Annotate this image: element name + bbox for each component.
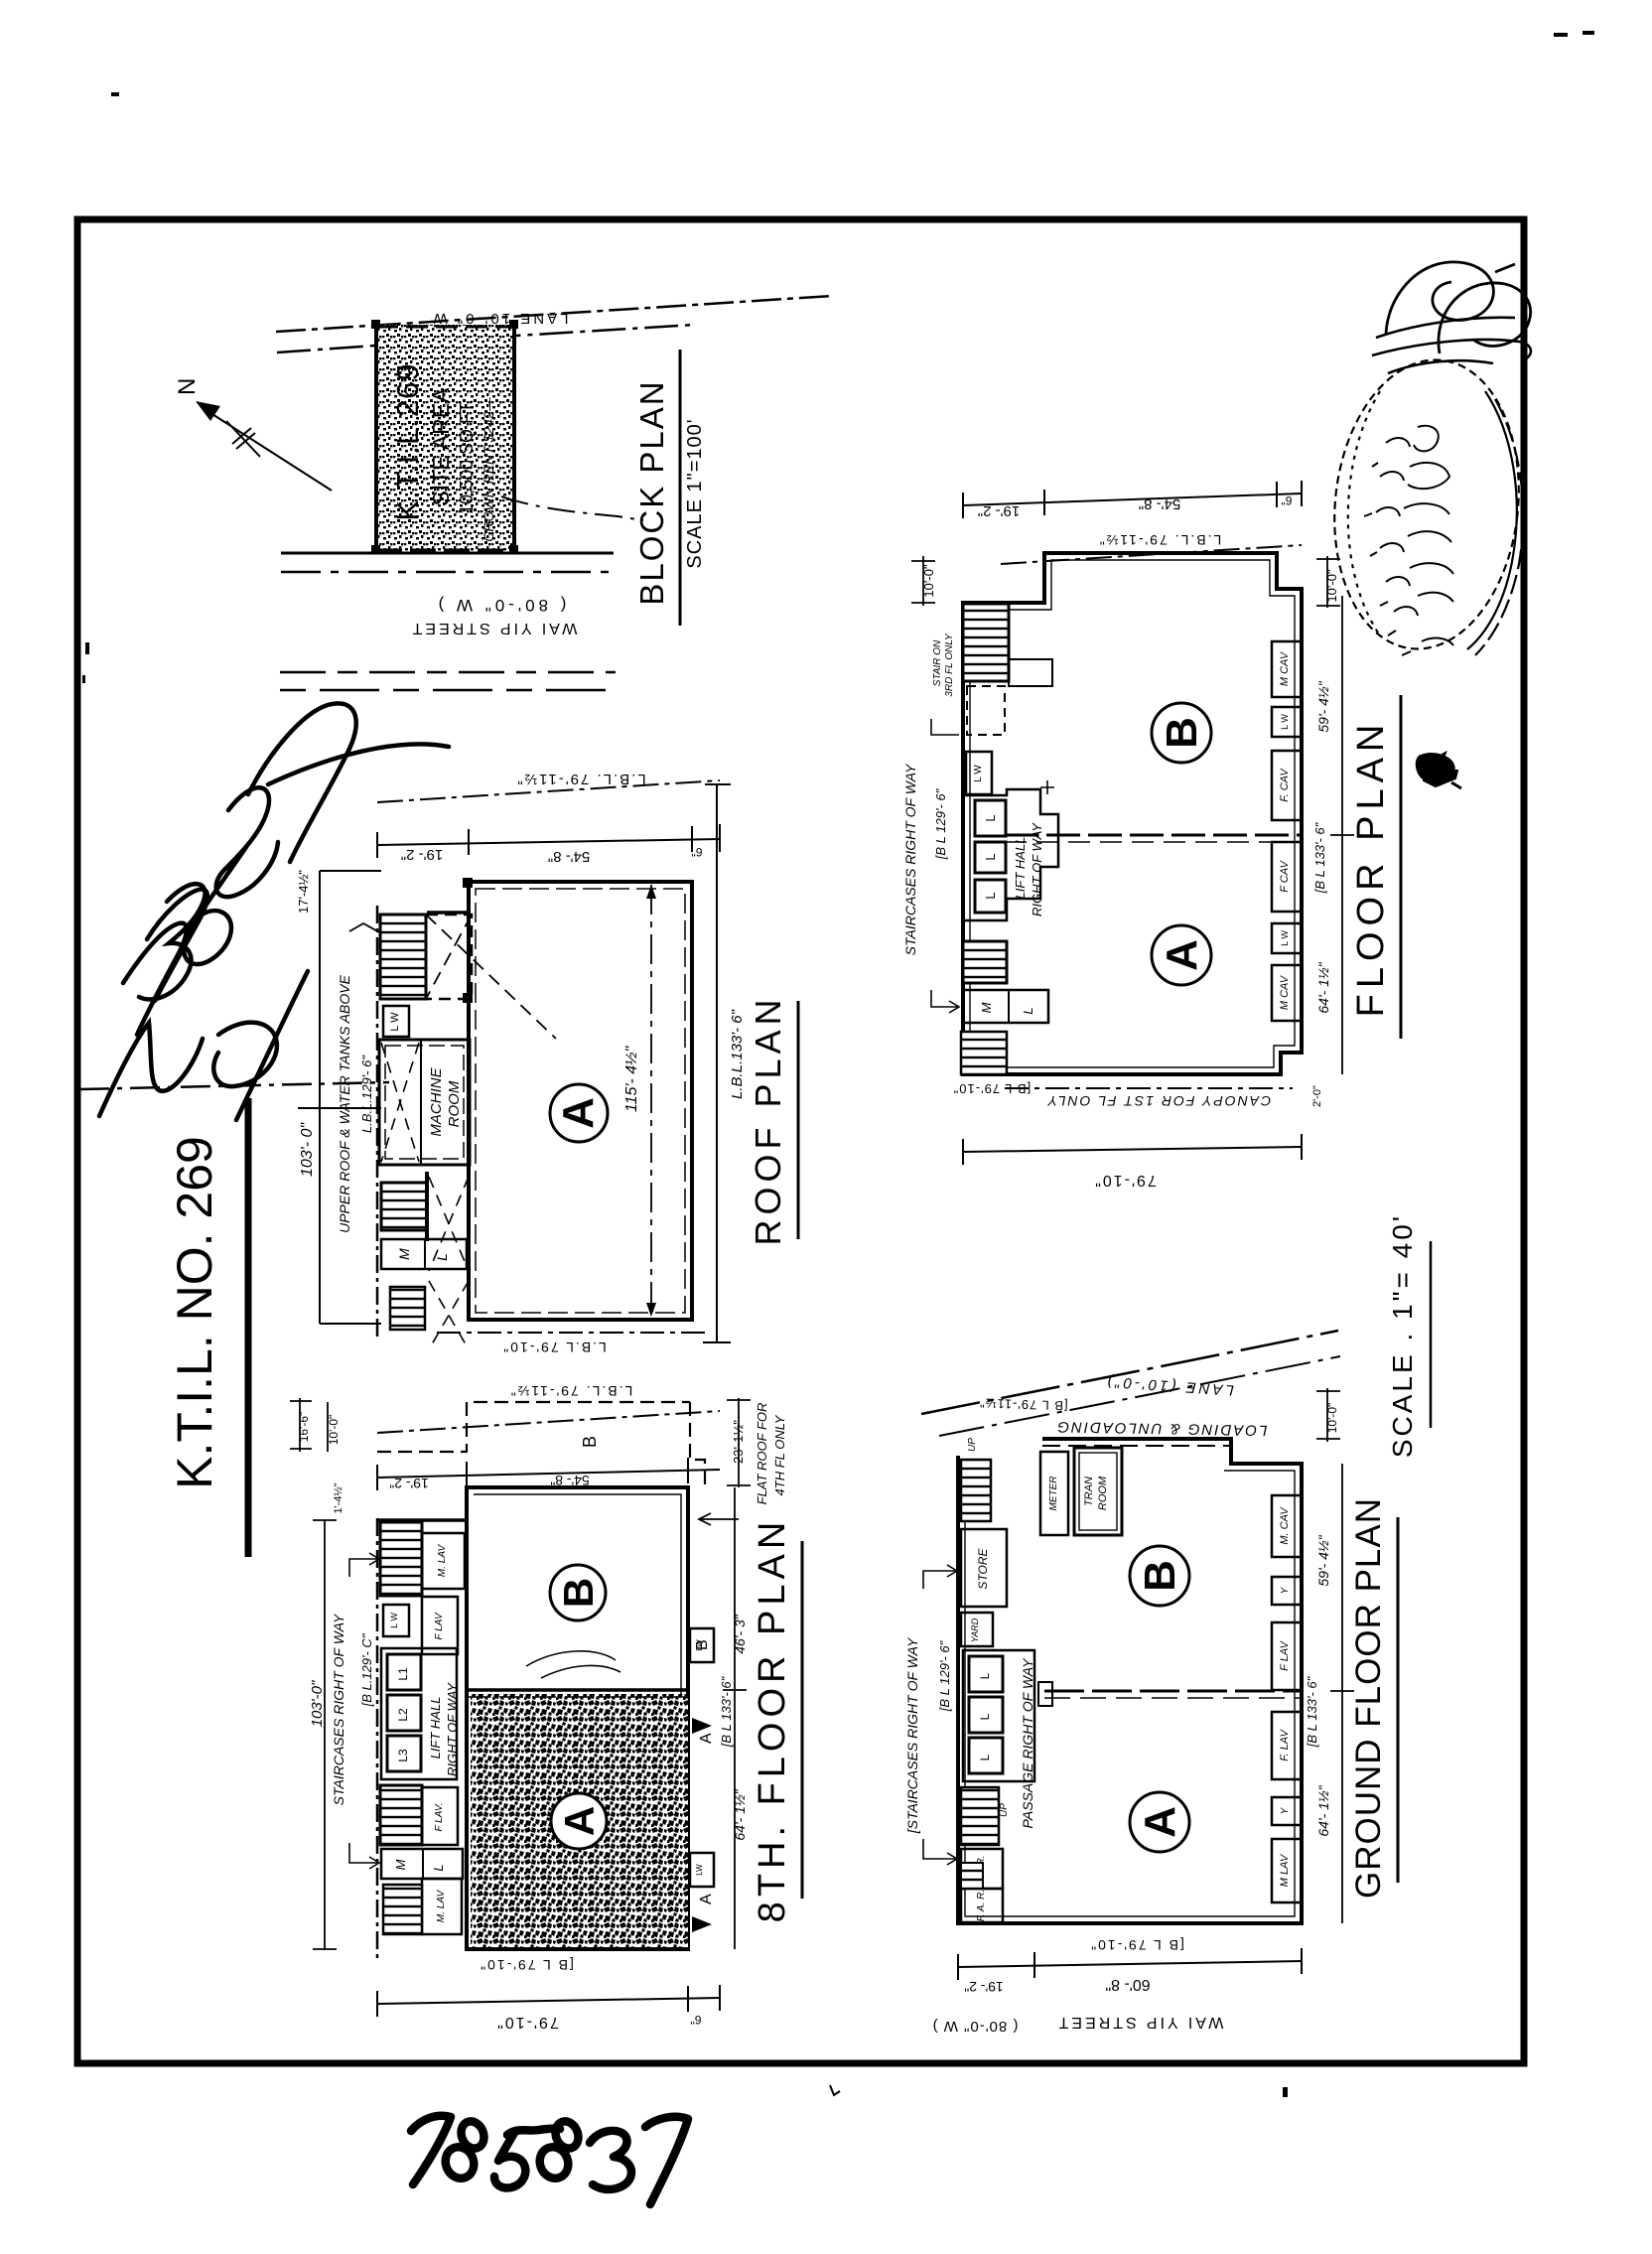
svg-text:10,500 SQ FT.: 10,500 SQ FT.: [457, 399, 477, 514]
svg-text:M CAV: M CAV: [1279, 974, 1291, 1010]
svg-text:L.B.L. 79'-11½": L.B.L. 79'-11½": [515, 771, 645, 787]
svg-text:UP: UP: [999, 1803, 1010, 1817]
svg-text:3RD FL ONLY: 3RD FL ONLY: [944, 633, 955, 697]
svg-text:2'-0": 2'-0": [1311, 1085, 1323, 1107]
svg-text:WAI YIP STREET: WAI YIP STREET: [410, 620, 578, 636]
svg-text:L1: L1: [396, 1667, 410, 1681]
svg-text:SCALE . 1"= 40': SCALE . 1"= 40': [1387, 1213, 1418, 1458]
svg-text:17'-4½": 17'-4½": [296, 870, 311, 914]
svg-text:M. LAV: M. LAV: [436, 1890, 447, 1923]
svg-text:[STAIRCASES RIGHT OF WAY: [STAIRCASES RIGHT OF WAY: [904, 1636, 920, 1834]
svg-text:L.B.L. 79'-11½": L.B.L. 79'-11½": [509, 1383, 633, 1399]
svg-text:K.T.I.L.269: K.T.I.L.269: [390, 362, 425, 520]
svg-text:CANOPY FOR 1ST FL ONLY: CANOPY FOR 1ST FL ONLY: [1046, 1093, 1272, 1109]
svg-text:L2: L2: [396, 1708, 410, 1722]
svg-text:19'- 2": 19'- 2": [978, 502, 1020, 519]
svg-text:L: L: [978, 1672, 992, 1679]
svg-text:M: M: [979, 1002, 994, 1013]
svg-text:L W: L W: [389, 1012, 401, 1032]
svg-text:4TH FL ONLY: 4TH FL ONLY: [772, 1414, 787, 1495]
svg-text:M. LAV: M. LAV: [437, 1544, 448, 1578]
svg-text:M: M: [396, 1248, 412, 1260]
svg-text:103'-0": 103'-0": [309, 1680, 326, 1727]
svg-text:CROWN RENT $242—: CROWN RENT $242—: [481, 396, 496, 541]
svg-text:10'-0": 10'-0": [327, 1415, 341, 1446]
svg-text:F LAV.: F LAV.: [434, 1802, 445, 1831]
svg-text:FLAT ROOF FOR: FLAT ROOF FOR: [755, 1403, 769, 1505]
svg-text:( 80'-0" W ): ( 80'-0" W ): [435, 596, 567, 615]
svg-text:STAIRCASES RIGHT OF WAY: STAIRCASES RIGHT OF WAY: [902, 763, 918, 955]
svg-text:L W: L W: [1280, 714, 1290, 730]
svg-text:19'- 2": 19'- 2": [389, 1476, 429, 1491]
svg-text:[B L 79'-10": [B L 79'-10": [1089, 1937, 1184, 1953]
svg-text:SITE AREA: SITE AREA: [428, 387, 454, 506]
svg-text:UPPER ROOF & WATER TANKS ABOVE: UPPER ROOF & WATER TANKS ABOVE: [337, 974, 352, 1232]
svg-text:B: B: [580, 1436, 600, 1448]
svg-text:[B L.129'- C": [B L.129'- C": [359, 1632, 374, 1707]
svg-text:19'- 2": 19'- 2": [964, 1979, 1004, 1995]
svg-text:L3: L3: [396, 1749, 410, 1762]
svg-text:6": 6": [1282, 493, 1293, 507]
svg-text:19'- 2": 19'- 2": [401, 846, 443, 863]
svg-text:L.B.L. 79'-11½": L.B.L. 79'-11½": [1098, 532, 1222, 548]
svg-text:54'- 8": 54'- 8": [548, 848, 590, 865]
svg-text:ROOF PLAN: ROOF PLAN: [748, 994, 788, 1245]
svg-text:79'-10": 79'-10": [1093, 1172, 1157, 1189]
svg-text:K.T.I.L. NO. 269: K.T.I.L. NO. 269: [167, 1136, 222, 1489]
svg-text:A: A: [698, 1733, 715, 1744]
svg-text:L W: L W: [973, 765, 984, 782]
svg-text:ROOM: ROOM: [446, 1080, 463, 1127]
svg-text:103'- 0": 103'- 0": [299, 1122, 316, 1177]
svg-text:MACHINE: MACHINE: [428, 1066, 445, 1136]
svg-text:L.B.L 79'-10": L.B.L 79'-10": [501, 1339, 607, 1355]
svg-text:[B L 133'- 6": [B L 133'- 6": [1305, 1675, 1319, 1748]
svg-text:TRAN: TRAN: [1083, 1477, 1095, 1506]
svg-text:UP: UP: [967, 1438, 978, 1452]
svg-text:64'- 1½": 64'- 1½": [1315, 1784, 1331, 1836]
svg-text:ROOM: ROOM: [1097, 1476, 1109, 1510]
svg-text:79'-10": 79'-10": [495, 2014, 559, 2031]
svg-text:STAIRCASES RIGHT OF WAY: STAIRCASES RIGHT OF WAY: [331, 1613, 346, 1805]
svg-text:L W: L W: [389, 1613, 399, 1628]
svg-text:L.B.L.133'- 6": L.B.L.133'- 6": [729, 1009, 746, 1099]
svg-text:L: L: [983, 853, 998, 860]
svg-text:METER: METER: [1048, 1477, 1059, 1511]
svg-text:F LAV: F LAV: [434, 1612, 445, 1639]
svg-text:RIGHT OF WAY: RIGHT OF WAY: [1030, 822, 1044, 916]
svg-text:STORE: STORE: [976, 1547, 990, 1589]
svg-text:L: L: [1021, 1007, 1035, 1014]
svg-text:54'- 8": 54'- 8": [1139, 495, 1180, 512]
svg-text:A: A: [1136, 1806, 1184, 1838]
svg-text:F CAV: F CAV: [1279, 860, 1291, 893]
svg-text:M. CAV: M. CAV: [1279, 1506, 1291, 1545]
svg-text:60'- 8": 60'- 8": [1105, 1976, 1150, 1993]
svg-text:L: L: [983, 892, 998, 899]
svg-text:L.B.L.129'- 6": L.B.L.129'- 6": [359, 1055, 374, 1133]
svg-text:BLOCK PLAN: BLOCK PLAN: [633, 379, 670, 605]
svg-text:M: M: [393, 1859, 408, 1870]
svg-text:PASSAGE RIGHT OF WAY: PASSAGE RIGHT OF WAY: [1020, 1657, 1035, 1829]
svg-text:B: B: [555, 1578, 602, 1608]
svg-text:6": 6": [692, 845, 703, 859]
svg-text:F. LAV: F. LAV: [1279, 1729, 1291, 1761]
svg-text:[B L 133'- 6": [B L 133'- 6": [1312, 821, 1327, 894]
svg-text:M CAV: M CAV: [1279, 650, 1291, 686]
svg-text:( 80'-0" W ): ( 80'-0" W ): [932, 2018, 1019, 2035]
svg-text:8TH. FLOOR PLAN: 8TH. FLOOR PLAN: [752, 1517, 793, 1923]
svg-text:[B L 79'-10": [B L 79'-10": [953, 1081, 1032, 1096]
svg-text:LIFT HALL: LIFT HALL: [428, 1697, 443, 1760]
svg-text:STAIR ON: STAIR ON: [932, 639, 943, 686]
svg-text:L: L: [431, 1864, 446, 1871]
svg-text:F. A. R.: F. A. R.: [976, 1890, 987, 1921]
svg-text:GROUND FLOOR PLAN: GROUND FLOOR PLAN: [1349, 1497, 1388, 1899]
svg-text:N: N: [174, 378, 201, 395]
svg-text:B: B: [1136, 1560, 1184, 1592]
svg-text:LW: LW: [695, 1639, 704, 1651]
svg-text:A: A: [554, 1097, 603, 1129]
svg-text:59'- 4½": 59'- 4½": [1315, 1534, 1331, 1586]
svg-text:LANE 10'-0" W: LANE 10'-0" W: [431, 310, 569, 327]
svg-text:YARD: YARD: [970, 1618, 980, 1642]
svg-text:64'- 1½": 64'- 1½": [1315, 961, 1331, 1013]
svg-text:[B L 79'-11½": [B L 79'-11½": [979, 1395, 1068, 1413]
svg-text:59'- 4½": 59'- 4½": [1315, 680, 1331, 732]
svg-text:115'- 4½": 115'- 4½": [623, 1046, 640, 1113]
svg-text:L: L: [983, 814, 998, 821]
svg-text:FLOOR PLAN: FLOOR PLAN: [1350, 719, 1392, 1018]
svg-text:[B L 129'- 6": [B L 129'- 6": [933, 787, 948, 860]
svg-text:WAI YIP STREET: WAI YIP STREET: [1056, 2014, 1224, 2031]
svg-text:L: L: [978, 1754, 992, 1761]
svg-text:A: A: [698, 1894, 715, 1904]
svg-text:LW: LW: [695, 1864, 704, 1876]
svg-text:SCALE 1"=100': SCALE 1"=100': [684, 418, 706, 568]
svg-text:[B L 79'-10": [B L 79'-10": [479, 1957, 574, 1973]
svg-text:LIFT HALL: LIFT HALL: [1013, 837, 1028, 900]
svg-text:A: A: [1158, 939, 1206, 971]
svg-text:1'-4½": 1'-4½": [333, 1482, 344, 1513]
svg-text:B: B: [1158, 717, 1206, 749]
svg-text:M LAV: M LAV: [1279, 1853, 1291, 1887]
svg-text:L W: L W: [1280, 930, 1290, 946]
svg-text:F LAV: F LAV: [1279, 1639, 1291, 1670]
svg-text:[B L 133'- 6": [B L 133'- 6": [719, 1675, 734, 1748]
svg-text:6": 6": [691, 2013, 702, 2027]
svg-text:F. CAV: F. CAV: [1279, 768, 1291, 802]
svg-text:RIGHT OF WAY: RIGHT OF WAY: [445, 1682, 460, 1776]
svg-text:L: L: [978, 1713, 992, 1720]
svg-text:A: A: [556, 1806, 603, 1836]
svg-text:[B L 129'- 6": [B L 129'- 6": [937, 1639, 952, 1712]
